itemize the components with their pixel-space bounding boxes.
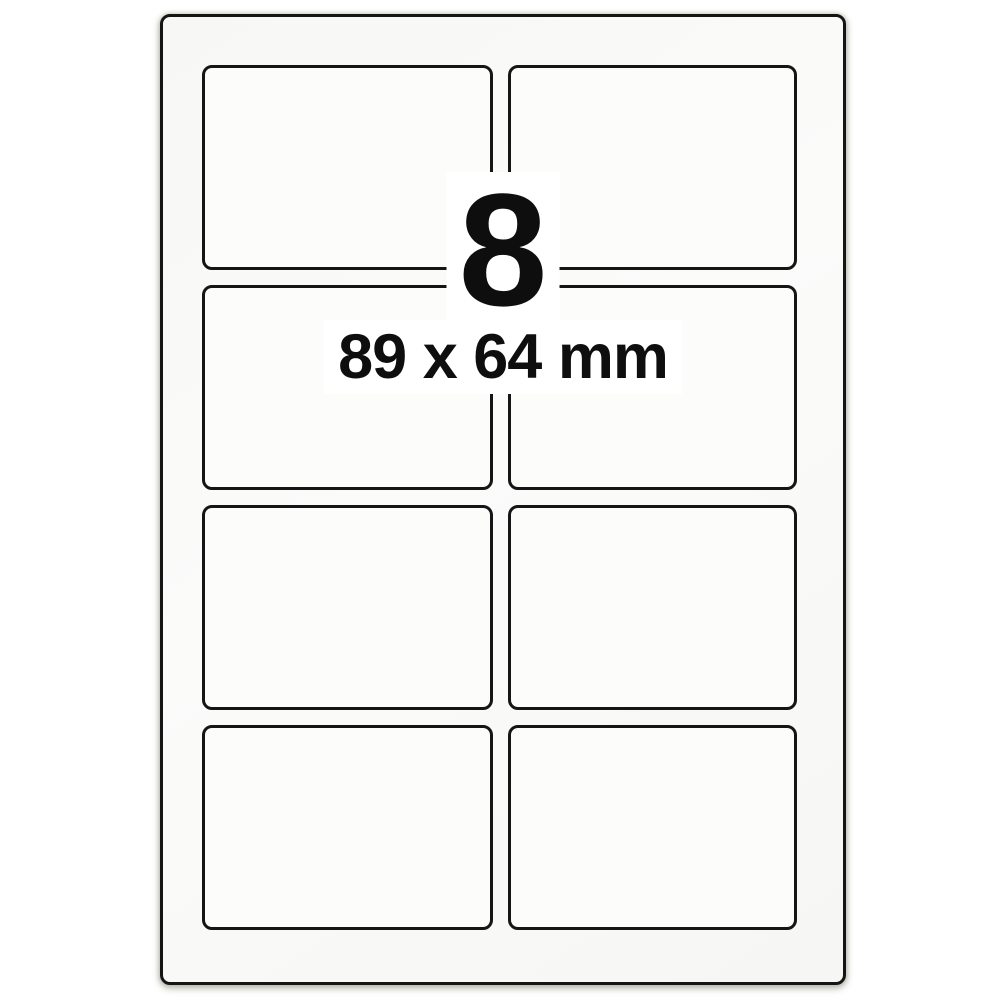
- label-cell: [508, 65, 797, 270]
- label-grid: [163, 17, 843, 982]
- label-cell: [508, 725, 797, 930]
- label-sheet-product-image: 8 89 x 64 mm: [0, 0, 1000, 1000]
- label-cell: [508, 285, 797, 490]
- label-cell: [202, 65, 493, 270]
- label-cell: [202, 285, 493, 490]
- label-cell: [508, 505, 797, 710]
- label-cell: [202, 725, 493, 930]
- a4-label-sheet: [160, 14, 846, 985]
- label-cell: [202, 505, 493, 710]
